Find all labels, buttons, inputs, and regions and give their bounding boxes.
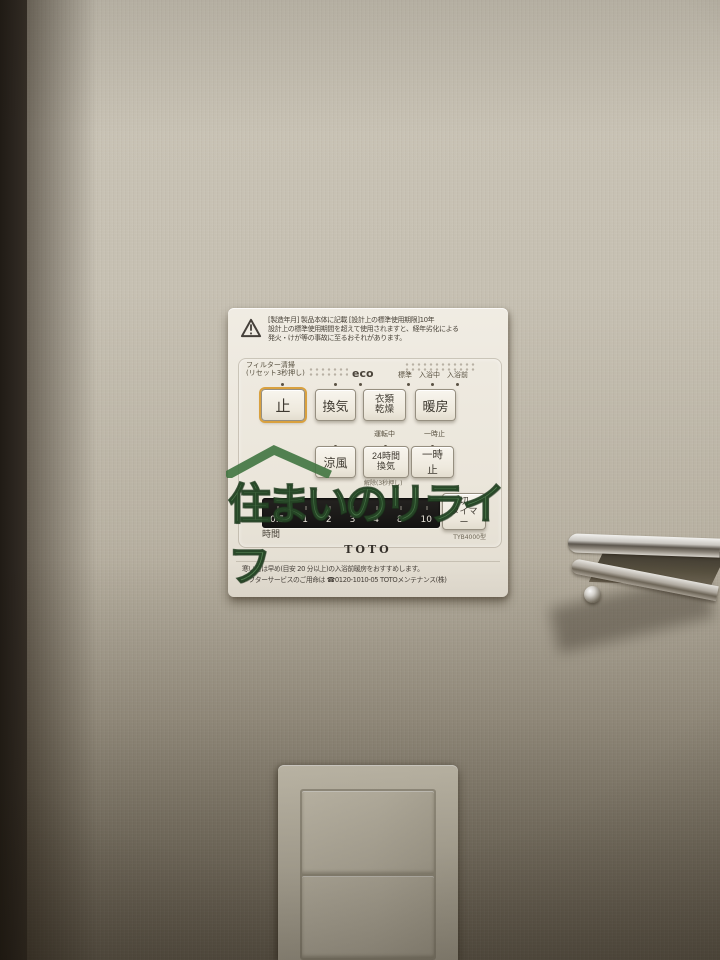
warning-triangle-icon	[240, 318, 262, 342]
timer-tick: 3	[350, 515, 356, 525]
clothes-drying-button[interactable]: 衣類 乾燥	[363, 389, 406, 421]
toto-control-panel: [製造年月] 製品本体に記載 [設計上の標準使用期限]10年 設計上の標準使用期…	[228, 308, 508, 597]
warning-row: [製造年月] 製品本体に記載 [設計上の標準使用期限]10年 設計上の標準使用期…	[240, 316, 498, 343]
timer-tick: 10	[421, 515, 432, 525]
ventilation-button[interactable]: 換気	[315, 389, 356, 421]
switch-rocker-group	[300, 789, 436, 960]
towel-bar-rail	[568, 533, 720, 557]
panel-footer-text: 寒い日は早め(目安 20 分以上)の入浴前暖房をおすすめします。 アフターサービ…	[242, 564, 496, 585]
timer-tick: 4	[373, 515, 379, 525]
cool-breeze-button[interactable]: 涼風	[315, 446, 356, 478]
toto-logo: TOTO	[228, 543, 508, 556]
pause-small-label: 一時止	[424, 430, 445, 438]
heating-button[interactable]: 暖房	[415, 389, 456, 421]
bathroom-wall-photo: [製造年月] 製品本体に記載 [設計上の標準使用期限]10年 設計上の標準使用期…	[0, 0, 720, 960]
led-indicator	[359, 383, 362, 386]
timer-scale-display: 0.5 1 2 3 4 8 10	[262, 498, 440, 528]
timer-tick: 0.5	[270, 515, 284, 525]
timer-tick: 2	[326, 515, 332, 525]
door-frame-shadow	[27, 0, 97, 960]
pause-button[interactable]: 一時止	[411, 446, 454, 478]
timer-tick: 8	[397, 515, 403, 525]
off-timer-button[interactable]: 切 タイマー	[442, 493, 486, 530]
led-indicator	[281, 383, 284, 386]
running-label: 運転中	[374, 430, 395, 438]
warning-text: [製造年月] 製品本体に記載 [設計上の標準使用期限]10年 設計上の標準使用期…	[268, 316, 459, 343]
door-frame	[0, 0, 27, 960]
heating-mode-labels: 標準 入浴中 入浴前	[398, 370, 468, 380]
led-indicator	[431, 383, 434, 386]
filter-clean-label: フィルター清掃 (リセット3秒押し)	[246, 361, 305, 378]
switch-rocker-top[interactable]	[302, 791, 434, 874]
led-indicator	[407, 383, 410, 386]
panel-divider	[236, 561, 500, 562]
light-switch-plate	[278, 765, 458, 960]
mode-bathing-label: 入浴中	[419, 370, 440, 380]
towel-bar-endcap	[584, 586, 601, 603]
led-indicator	[456, 383, 459, 386]
led-indicator	[334, 383, 337, 386]
stop-button[interactable]: 止	[261, 389, 305, 421]
vent-24h-button[interactable]: 24時間 換気	[363, 446, 409, 478]
mode-prebath-label: 入浴前	[447, 370, 468, 380]
release-label: 解除(3秒押し)	[364, 480, 403, 487]
switch-rocker-bottom[interactable]	[302, 876, 434, 959]
mode-standard-label: 標準	[398, 370, 412, 380]
eco-label: eco	[352, 367, 374, 380]
braille-dots	[308, 367, 348, 376]
chrome-towel-bar	[548, 528, 720, 658]
hours-label: 時間	[262, 530, 280, 541]
timer-tick: 1	[302, 515, 308, 525]
model-number: TYB4000型	[424, 534, 486, 541]
